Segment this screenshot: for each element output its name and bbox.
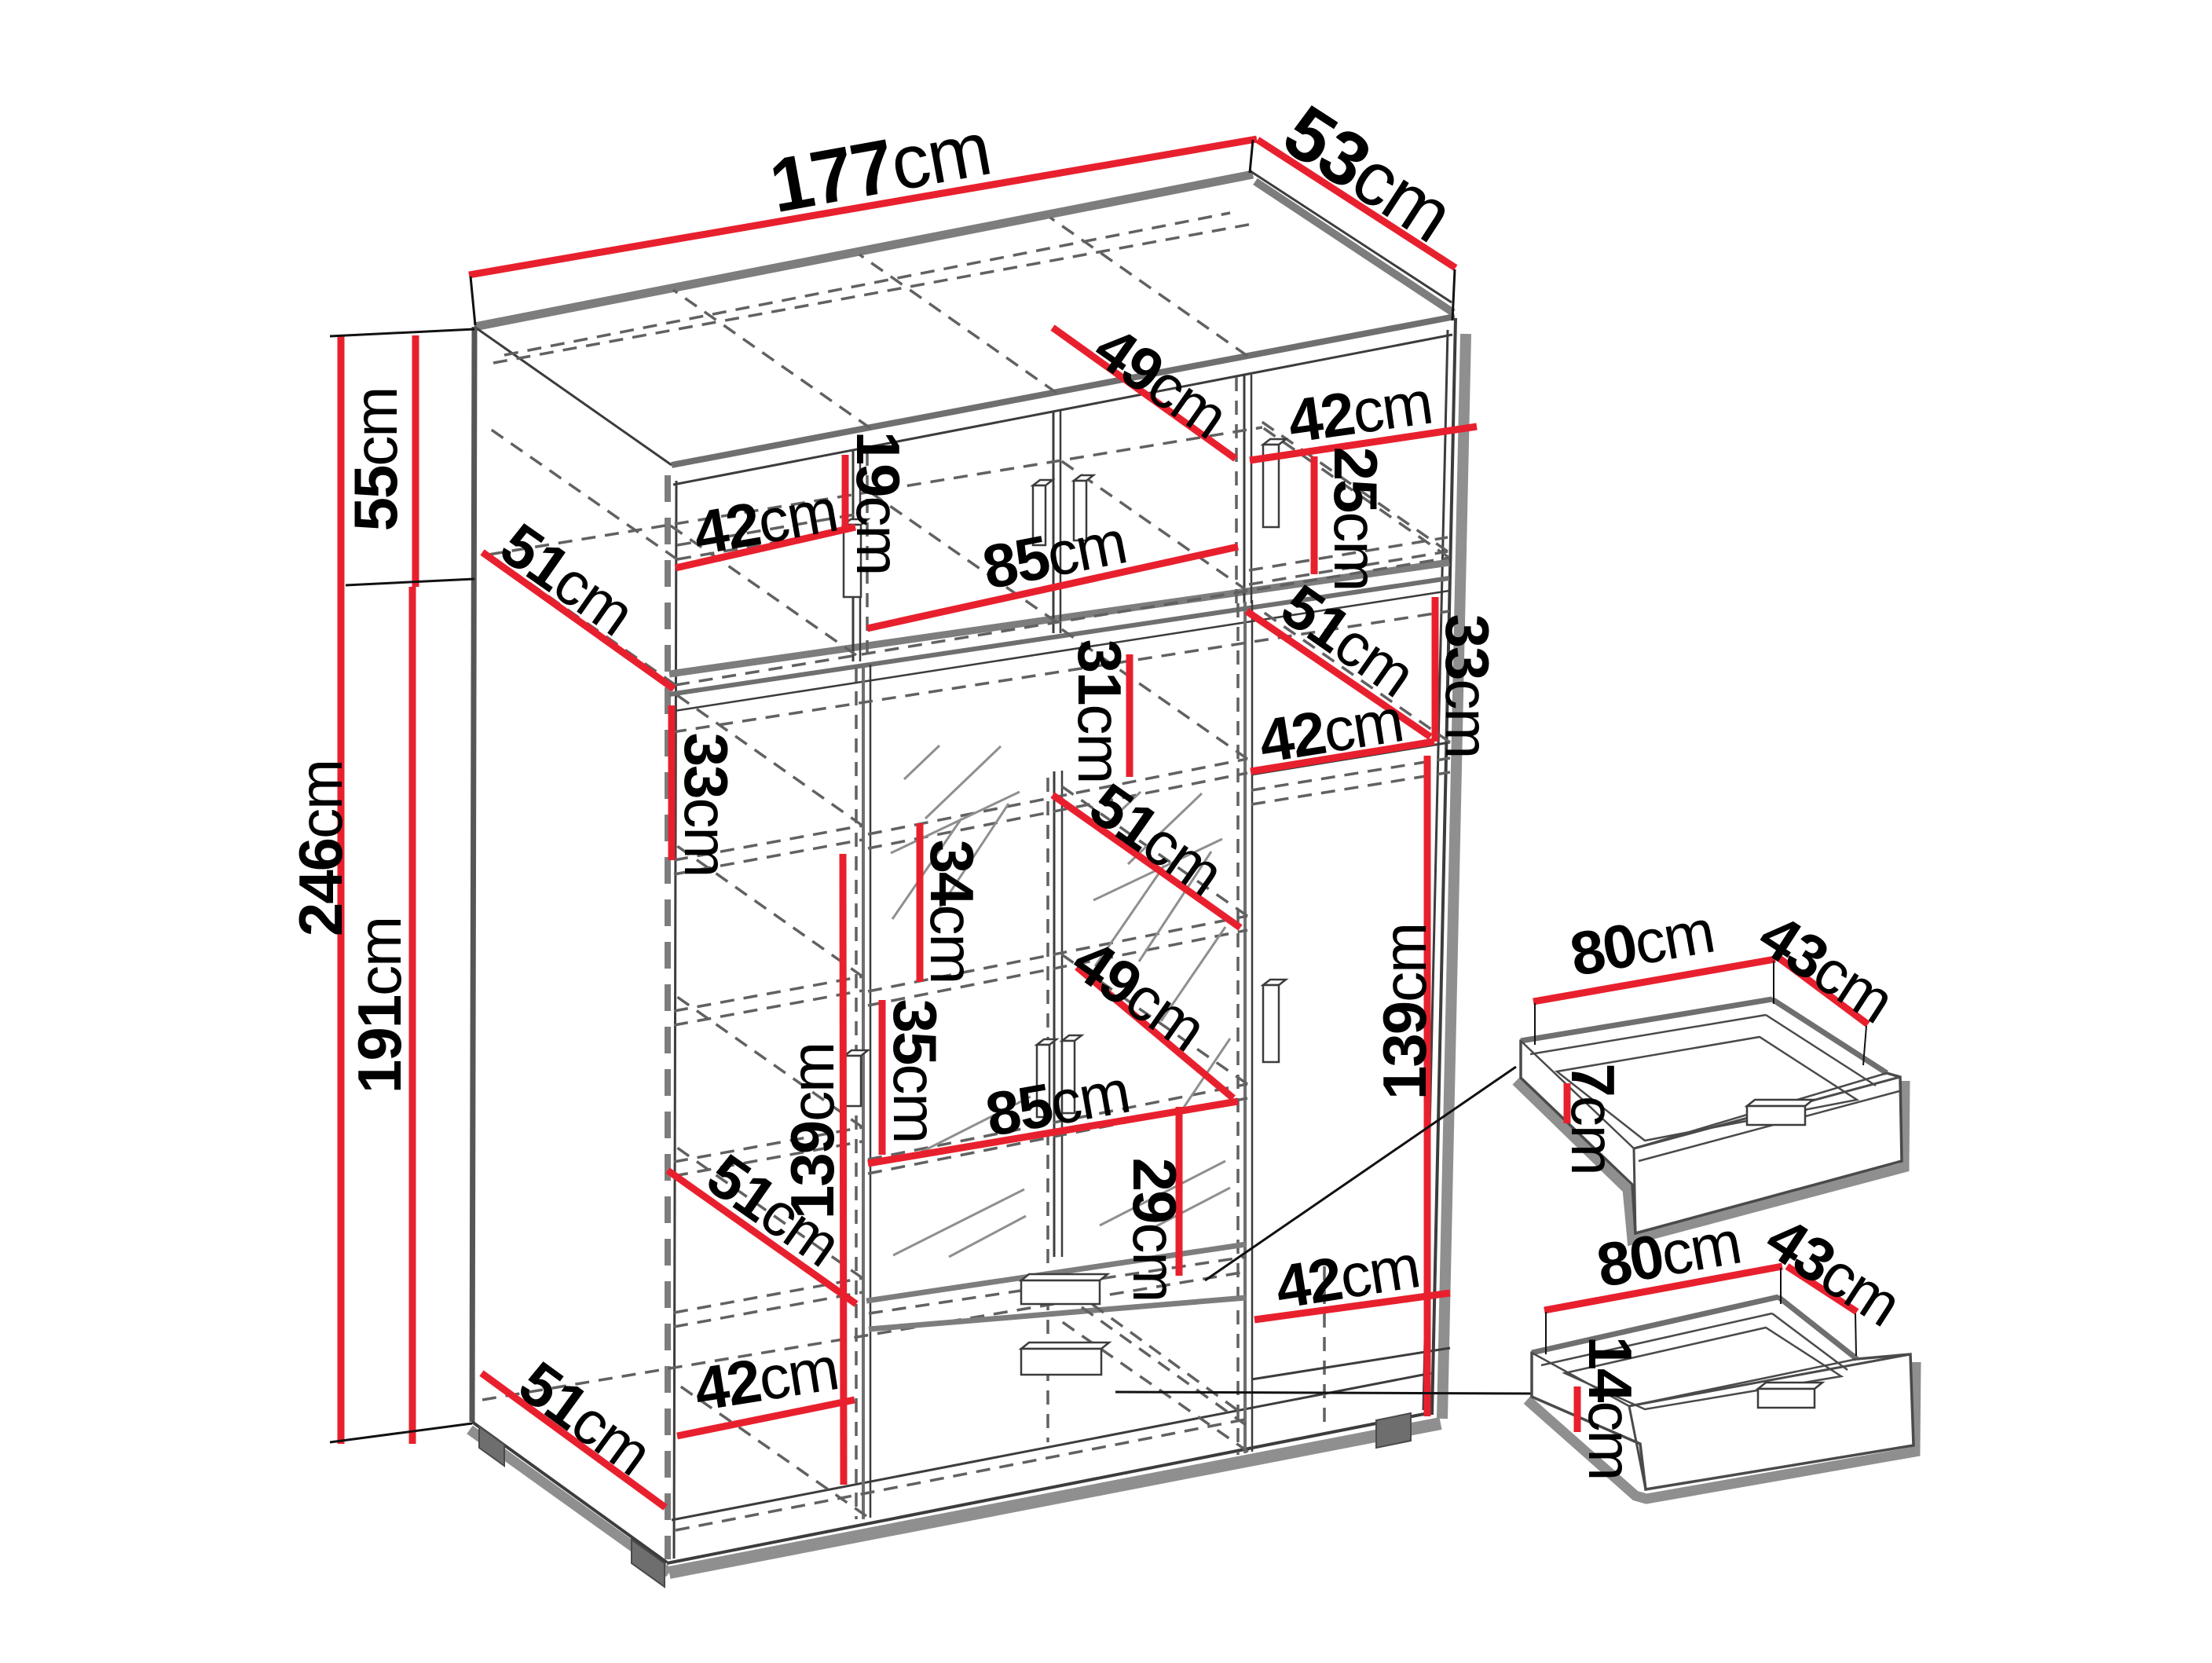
svg-text:33cm: 33cm — [672, 733, 741, 877]
svg-text:139cm: 139cm — [1370, 924, 1439, 1100]
svg-text:35cm: 35cm — [881, 999, 950, 1143]
svg-text:25cm: 25cm — [1321, 447, 1390, 591]
svg-text:139cm: 139cm — [778, 1043, 847, 1219]
svg-text:31cm: 31cm — [1065, 639, 1134, 783]
svg-text:33cm: 33cm — [1433, 614, 1502, 758]
svg-text:55cm: 55cm — [341, 388, 410, 532]
svg-text:246cm: 246cm — [286, 760, 355, 936]
svg-text:14cm: 14cm — [1576, 1336, 1645, 1480]
svg-text:29cm: 29cm — [1120, 1158, 1189, 1302]
svg-text:34cm: 34cm — [917, 840, 987, 984]
svg-text:7cm: 7cm — [1558, 1063, 1628, 1174]
svg-text:191cm: 191cm — [345, 918, 414, 1093]
svg-text:19cm: 19cm — [844, 431, 913, 575]
